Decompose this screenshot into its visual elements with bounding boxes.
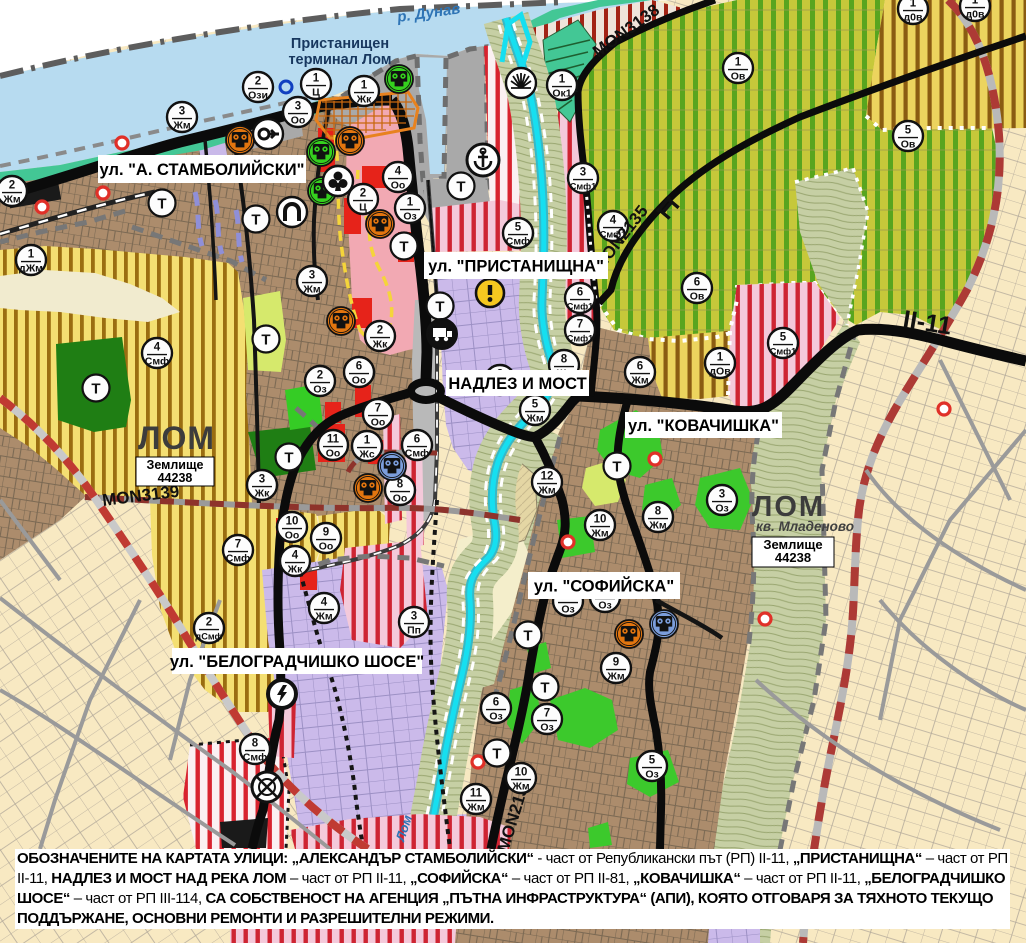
svg-text:Оо: Оо: [352, 375, 367, 387]
svg-text:ул. "СОФИЙСКА": ул. "СОФИЙСКА": [534, 576, 674, 595]
svg-text:Ов: Ов: [731, 71, 746, 83]
svg-text:44238: 44238: [158, 471, 193, 485]
svg-text:Жк: Жк: [356, 94, 372, 106]
svg-text:Т: Т: [435, 299, 444, 316]
svg-text:7: 7: [577, 319, 583, 331]
svg-text:44238: 44238: [775, 550, 811, 565]
svg-text:4: 4: [395, 166, 402, 178]
svg-text:Жм: Жм: [302, 284, 320, 296]
svg-text:дСмф: дСмф: [195, 632, 222, 642]
svg-text:3: 3: [719, 489, 725, 501]
svg-text:Т: Т: [456, 179, 465, 196]
svg-text:ул. "КОВАЧИШКА": ул. "КОВАЧИШКА": [628, 417, 779, 435]
svg-text:Смф1: Смф1: [770, 347, 796, 357]
svg-text:Смф: Смф: [243, 752, 267, 764]
svg-text:Жм: Жм: [606, 671, 624, 683]
svg-text:11: 11: [470, 788, 483, 800]
svg-text:терминал Лом: терминал Лом: [288, 52, 391, 68]
svg-text:4: 4: [610, 215, 617, 227]
svg-text:Жк: Жк: [372, 339, 388, 351]
svg-text:9: 9: [323, 527, 329, 539]
svg-text:ЛОМ: ЛОМ: [138, 420, 215, 456]
svg-text:Смф: Смф: [506, 236, 530, 248]
svg-text:6: 6: [493, 697, 499, 709]
svg-text:Жм: Жм: [314, 611, 332, 623]
svg-text:4: 4: [321, 597, 328, 609]
svg-text:Пристанищен: Пристанищен: [291, 36, 389, 52]
svg-text:Жм: Жм: [630, 375, 648, 387]
svg-text:10: 10: [286, 516, 299, 528]
svg-text:Смф: Смф: [145, 356, 169, 368]
svg-text:НАДЛЕЗ И МОСТ: НАДЛЕЗ И МОСТ: [448, 375, 586, 393]
svg-text:Ов: Ов: [901, 139, 916, 151]
svg-text:дОв: дОв: [709, 366, 731, 378]
svg-text:Жм: Жм: [2, 194, 20, 206]
svg-text:Жм: Жм: [511, 781, 529, 793]
svg-text:8: 8: [252, 738, 259, 750]
svg-text:3: 3: [179, 106, 185, 118]
svg-text:9: 9: [613, 657, 619, 669]
svg-text:Ози: Ози: [248, 90, 268, 102]
svg-text:2: 2: [255, 76, 261, 88]
svg-text:Пп: Пп: [407, 625, 421, 637]
svg-text:4: 4: [154, 342, 161, 354]
svg-text:10: 10: [594, 514, 607, 526]
svg-text:1: 1: [313, 73, 320, 85]
svg-text:Т: Т: [492, 746, 501, 763]
svg-text:3: 3: [295, 101, 301, 113]
svg-text:ул. "А. СТАМБОЛИЙСКИ": ул. "А. СТАМБОЛИЙСКИ": [100, 160, 305, 179]
svg-text:ул. "ПРИСТАНИЩНА": ул. "ПРИСТАНИЩНА": [428, 257, 604, 275]
svg-text:1: 1: [364, 435, 371, 447]
svg-text:Оз: Оз: [715, 503, 728, 515]
svg-text:2: 2: [9, 180, 15, 192]
svg-text:3: 3: [411, 611, 417, 623]
svg-text:1: 1: [972, 0, 979, 7]
svg-text:1: 1: [559, 74, 566, 86]
svg-text:Жм: Жм: [466, 802, 484, 814]
svg-text:10: 10: [515, 767, 528, 779]
svg-text:2: 2: [317, 370, 323, 382]
svg-text:Оз: Оз: [598, 600, 611, 612]
svg-text:Т: Т: [157, 196, 166, 213]
svg-text:Жм: Жм: [525, 413, 543, 425]
svg-text:Жм: Жм: [648, 520, 666, 532]
svg-text:8: 8: [397, 479, 404, 491]
svg-text:1: 1: [407, 197, 414, 209]
svg-text:Оо: Оо: [291, 115, 306, 127]
svg-text:Жк: Жк: [254, 488, 270, 500]
svg-text:6: 6: [694, 277, 700, 289]
svg-text:Т: Т: [261, 332, 270, 349]
svg-text:Оо: Оо: [391, 180, 406, 192]
svg-text:Т: Т: [91, 381, 100, 398]
svg-text:Ок1: Ок1: [552, 88, 571, 100]
svg-text:Жм: Жм: [172, 120, 190, 132]
svg-text:2: 2: [206, 617, 212, 629]
svg-text:2: 2: [377, 325, 383, 337]
svg-text:6: 6: [577, 287, 583, 299]
svg-text:Оо: Оо: [371, 417, 386, 429]
svg-text:7: 7: [375, 403, 381, 415]
svg-text:Оз: Оз: [645, 769, 658, 781]
svg-text:2: 2: [360, 188, 366, 200]
svg-text:Оо: Оо: [393, 493, 408, 505]
svg-text:1: 1: [735, 57, 742, 69]
svg-text:5: 5: [905, 125, 912, 137]
svg-text:кв. Младеново: кв. Младеново: [756, 519, 854, 534]
svg-text:Ов: Ов: [690, 291, 705, 303]
svg-text:Т: Т: [540, 680, 549, 697]
svg-text:Жс: Жс: [358, 449, 374, 461]
svg-text:Жм: Жм: [537, 485, 555, 497]
svg-text:Смф1: Смф1: [570, 182, 596, 192]
svg-text:Смф1: Смф1: [567, 334, 593, 344]
svg-text:Жм: Жм: [590, 528, 608, 540]
svg-text:8: 8: [561, 354, 568, 366]
svg-text:5: 5: [780, 332, 787, 344]
svg-text:7: 7: [235, 539, 241, 551]
svg-text:1: 1: [28, 249, 35, 261]
svg-text:7: 7: [544, 708, 550, 720]
svg-text:Смф: Смф: [405, 448, 429, 460]
svg-text:Т: Т: [284, 450, 293, 467]
svg-text:3: 3: [309, 270, 315, 282]
svg-text:3: 3: [580, 167, 586, 179]
svg-text:5: 5: [515, 222, 522, 234]
svg-text:6: 6: [414, 434, 420, 446]
svg-text:д0в: д0в: [904, 12, 924, 24]
svg-text:1: 1: [910, 0, 917, 10]
svg-text:5: 5: [532, 399, 539, 411]
svg-text:Оо: Оо: [326, 448, 341, 460]
svg-text:8: 8: [655, 506, 662, 518]
svg-text:Землище: Землище: [147, 458, 204, 472]
svg-text:5: 5: [649, 755, 656, 767]
svg-text:Оз: Оз: [403, 211, 416, 223]
svg-text:6: 6: [356, 361, 362, 373]
svg-text:Оз: Оз: [489, 711, 502, 723]
svg-text:4: 4: [292, 550, 299, 562]
svg-text:Ц: Ц: [312, 87, 320, 99]
svg-text:д0в: д0в: [966, 9, 986, 21]
svg-text:Смф: Смф: [226, 553, 250, 565]
svg-text:Оз: Оз: [561, 604, 574, 616]
svg-text:1: 1: [717, 352, 724, 364]
svg-text:Оо: Оо: [319, 541, 334, 553]
svg-text:Оо: Оо: [285, 530, 300, 542]
svg-text:Ц: Ц: [359, 202, 367, 214]
svg-text:дЖм: дЖм: [19, 263, 43, 275]
svg-text:Т: Т: [251, 212, 260, 229]
svg-text:Жк: Жк: [287, 564, 303, 576]
svg-text:11: 11: [327, 434, 340, 446]
svg-text:ул. "БЕЛОГРАДЧИШКО ШОСЕ": ул. "БЕЛОГРАДЧИШКО ШОСЕ": [170, 653, 424, 671]
svg-text:Оз: Оз: [540, 722, 553, 734]
svg-text:Т: Т: [523, 628, 532, 645]
svg-text:Оз: Оз: [313, 384, 326, 396]
svg-text:Смф1: Смф1: [567, 302, 593, 312]
svg-text:1: 1: [361, 80, 368, 92]
svg-text:6: 6: [637, 361, 643, 373]
svg-text:3: 3: [259, 474, 265, 486]
svg-text:Т: Т: [399, 239, 408, 256]
svg-text:12: 12: [541, 471, 554, 483]
svg-text:Т: Т: [612, 459, 621, 476]
